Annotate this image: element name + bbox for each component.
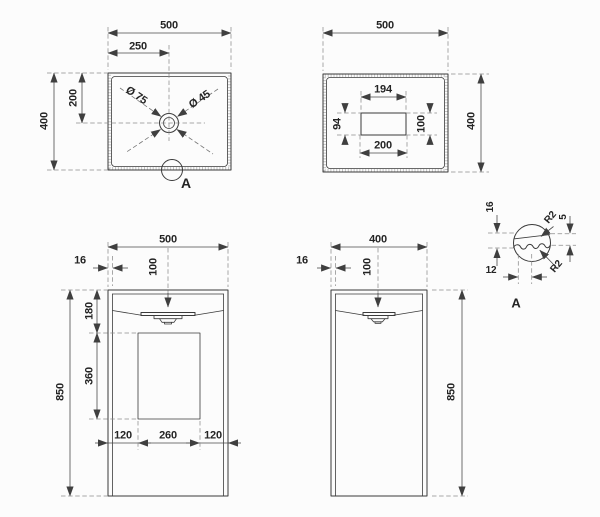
dim-side-wall: 16 xyxy=(296,256,308,267)
dim-bottom-depth: 400 xyxy=(467,112,478,130)
dim-cutout-bottom: 200 xyxy=(374,141,392,152)
dim-cutout-left: 94 xyxy=(333,118,344,130)
dim-top-depth: 400 xyxy=(40,112,51,130)
dim-front-basin-depth: 100 xyxy=(149,258,160,276)
dim-side-height: 850 xyxy=(447,383,458,401)
dim-side-depth: 400 xyxy=(369,235,387,246)
dim-front-width: 500 xyxy=(159,235,177,246)
service-recess xyxy=(138,333,200,419)
technical-drawing-sheet: 500 250 200 400 Ø 75 Ø 45 A 500 400 194 … xyxy=(0,0,600,517)
detail-a-reference: A xyxy=(181,176,191,190)
dim-front-recess-height: 360 xyxy=(85,367,96,385)
dim-cutout-top: 194 xyxy=(374,85,392,96)
drain-cutout xyxy=(361,113,406,135)
detail-a-linework xyxy=(488,215,576,284)
side-view-linework xyxy=(317,242,468,496)
dim-top-center-y: 200 xyxy=(69,89,80,107)
dim-recess-margin-right: 120 xyxy=(204,431,222,442)
dim-front-top-to-recess: 180 xyxy=(85,302,96,320)
pedestal-outline xyxy=(331,290,427,496)
dim-detail-wave-pitch: 12 xyxy=(486,266,497,276)
dim-recess-width: 260 xyxy=(159,431,177,442)
rim-wave-profile xyxy=(514,244,551,249)
dim-detail-edge-offset: 5 xyxy=(559,214,569,219)
dim-recess-margin-left: 120 xyxy=(114,431,132,442)
dim-detail-rim-height: 16 xyxy=(486,202,496,213)
dim-top-center-x: 250 xyxy=(129,42,147,53)
bottom-view-linework xyxy=(323,27,489,172)
dim-side-basin-depth: 100 xyxy=(363,258,374,276)
pedestal-outline xyxy=(108,290,228,496)
dim-bottom-total-width: 500 xyxy=(376,21,394,32)
dim-front-wall: 16 xyxy=(74,256,86,267)
drain-cover xyxy=(141,313,195,316)
drain-cover xyxy=(363,313,395,316)
detail-a-title: A xyxy=(511,297,520,310)
dim-front-height: 850 xyxy=(56,383,67,401)
dim-top-total-width: 500 xyxy=(160,21,178,32)
dim-cutout-right: 100 xyxy=(417,115,428,133)
